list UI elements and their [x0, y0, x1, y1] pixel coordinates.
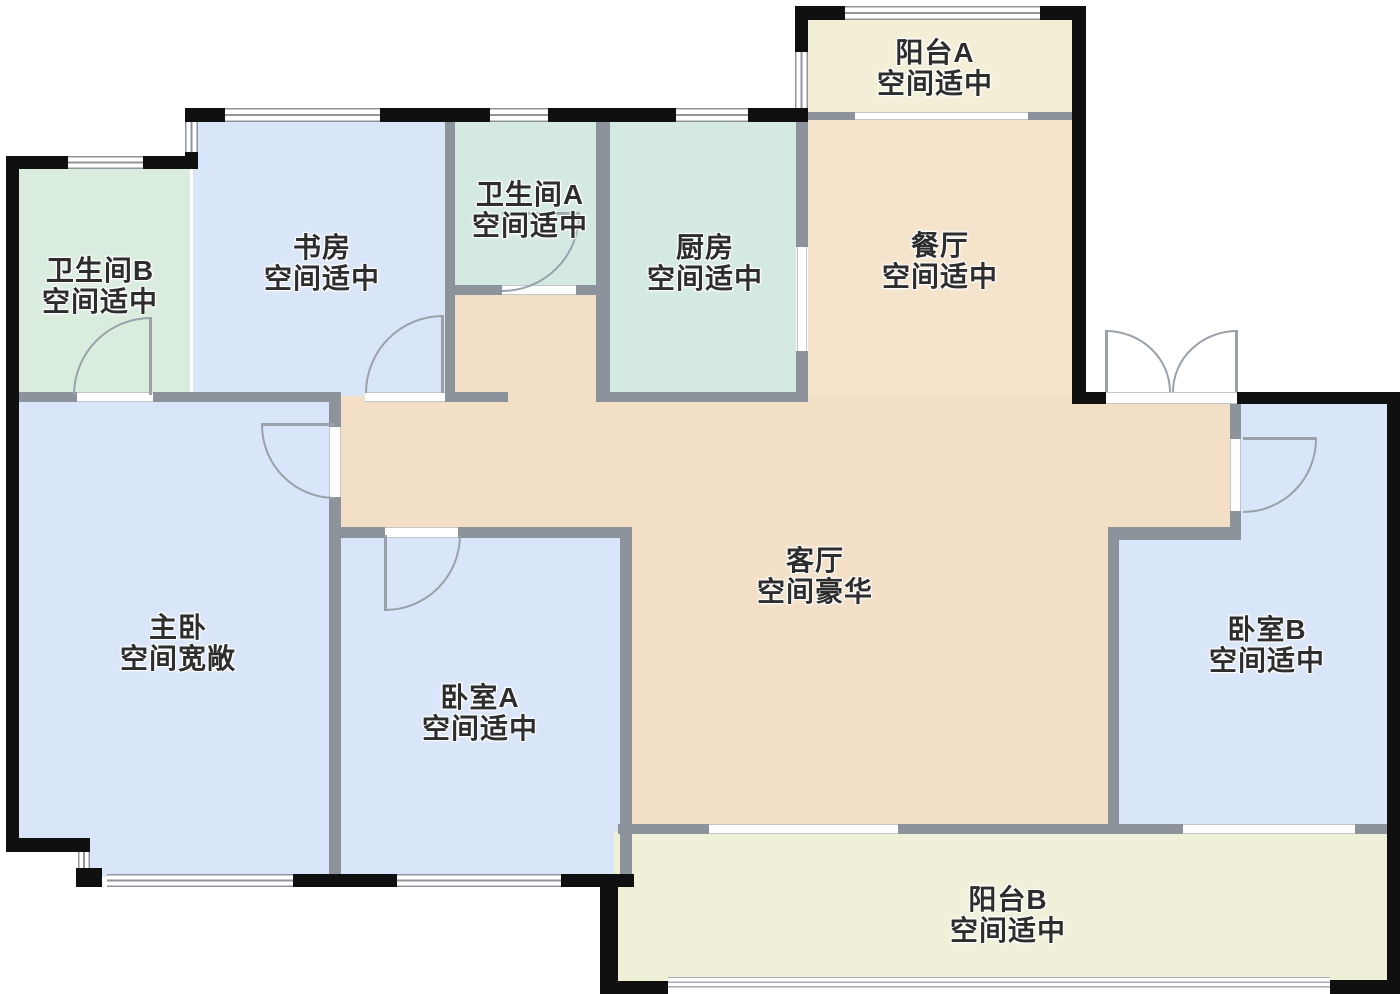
balcony-railing — [668, 977, 1330, 991]
wall — [153, 392, 341, 402]
room-status: 空间宽敞 — [120, 643, 236, 674]
wall — [458, 527, 632, 538]
room-name: 卧室B — [1209, 614, 1325, 645]
room-name: 阳台A — [877, 37, 993, 68]
opening-threshold — [797, 247, 807, 351]
room-status: 空间适中 — [950, 915, 1066, 946]
room-name: 卫生间A — [472, 179, 588, 210]
window — [1183, 824, 1355, 834]
wall — [1237, 392, 1400, 404]
room-name: 卧室A — [422, 682, 538, 713]
window — [676, 108, 748, 122]
room-label-kitchen: 厨房 空间适中 — [647, 232, 763, 294]
room-name: 阳台B — [950, 884, 1066, 915]
wall — [76, 868, 102, 887]
window — [845, 6, 1040, 20]
wall — [600, 981, 668, 994]
door-panel — [1105, 330, 1108, 392]
room-area-bed-b — [1113, 540, 1237, 831]
floor-plan: 阳台A 空间适中 餐厅 空间适中 卫生间B 空间适中 书房 空间适中 卫生间A … — [0, 0, 1400, 994]
wall — [143, 156, 198, 169]
door-panel — [1235, 330, 1238, 392]
wall — [329, 497, 341, 877]
room-status: 空间适中 — [264, 263, 380, 294]
wall — [576, 285, 610, 295]
room-label-bed-a: 卧室A 空间适中 — [422, 682, 538, 744]
room-area-living — [625, 396, 1113, 831]
room-name: 卫生间B — [42, 255, 158, 286]
room-status: 空间豪华 — [757, 576, 873, 607]
room-status: 空间适中 — [877, 68, 993, 99]
hallway-area — [335, 396, 632, 531]
room-name: 餐厅 — [882, 230, 998, 261]
wall — [1330, 980, 1400, 994]
wall — [19, 392, 77, 402]
wall — [561, 874, 634, 887]
opening-threshold — [855, 112, 1028, 120]
wall — [795, 6, 808, 52]
door-panel — [1243, 437, 1317, 440]
room-status: 空间适中 — [42, 286, 158, 317]
door-panel — [384, 535, 387, 611]
wall — [1072, 6, 1086, 402]
room-label-bath-a: 卫生间A 空间适中 — [472, 179, 588, 241]
door-threshold — [365, 392, 445, 402]
window — [490, 108, 548, 122]
window — [107, 874, 293, 887]
wall — [1355, 824, 1390, 834]
wall — [596, 122, 610, 392]
door-panel — [149, 317, 152, 395]
wall — [1072, 392, 1106, 404]
window — [225, 108, 380, 122]
wall — [455, 285, 502, 295]
wall — [808, 112, 855, 120]
room-status: 空间适中 — [882, 261, 998, 292]
room-status: 空间适中 — [472, 210, 588, 241]
wall — [1028, 112, 1072, 120]
wall — [1387, 392, 1400, 985]
wall — [445, 122, 455, 392]
wall — [796, 122, 808, 247]
room-area-living — [1072, 402, 1232, 536]
wall — [1230, 404, 1241, 439]
wall — [335, 527, 385, 538]
wall — [6, 156, 19, 852]
wall — [618, 824, 709, 834]
wall — [6, 838, 90, 852]
wall — [185, 108, 225, 122]
wall — [1108, 532, 1119, 831]
room-label-bed-b: 卧室B 空间适中 — [1209, 614, 1325, 676]
window — [68, 156, 143, 169]
room-label-study: 书房 空间适中 — [264, 232, 380, 294]
hallway-area — [455, 285, 596, 402]
door-panel — [441, 315, 444, 393]
room-name: 主卧 — [120, 612, 236, 643]
room-label-balcony-b: 阳台B 空间适中 — [950, 884, 1066, 946]
room-name: 厨房 — [647, 232, 763, 263]
door-panel — [261, 423, 335, 426]
wall — [293, 874, 397, 887]
french-door-arc-left — [1106, 330, 1171, 392]
wall — [596, 392, 808, 402]
wall — [548, 108, 676, 122]
window — [185, 122, 198, 152]
room-label-living: 客厅 空间豪华 — [757, 545, 873, 607]
wall — [748, 108, 806, 122]
room-name: 客厅 — [757, 545, 873, 576]
window — [397, 874, 561, 887]
wall — [898, 824, 1183, 834]
room-label-balcony-a: 阳台A 空间适中 — [877, 37, 993, 99]
window — [78, 852, 90, 868]
room-area-master — [90, 845, 335, 877]
door-threshold — [1106, 392, 1237, 404]
wall — [1108, 527, 1241, 540]
window — [795, 52, 808, 108]
room-status: 空间适中 — [1209, 645, 1325, 676]
wall — [600, 876, 618, 994]
room-label-master: 主卧 空间宽敞 — [120, 612, 236, 674]
wall — [445, 392, 508, 402]
window — [709, 824, 898, 834]
room-label-bath-b: 卫生间B 空间适中 — [42, 255, 158, 317]
french-door-arc-right — [1172, 330, 1237, 392]
door-threshold — [1230, 439, 1241, 511]
room-name: 书房 — [264, 232, 380, 263]
room-label-dining: 餐厅 空间适中 — [882, 230, 998, 292]
wall — [380, 108, 490, 122]
room-status: 空间适中 — [422, 713, 538, 744]
wall — [796, 351, 808, 396]
room-status: 空间适中 — [647, 263, 763, 294]
